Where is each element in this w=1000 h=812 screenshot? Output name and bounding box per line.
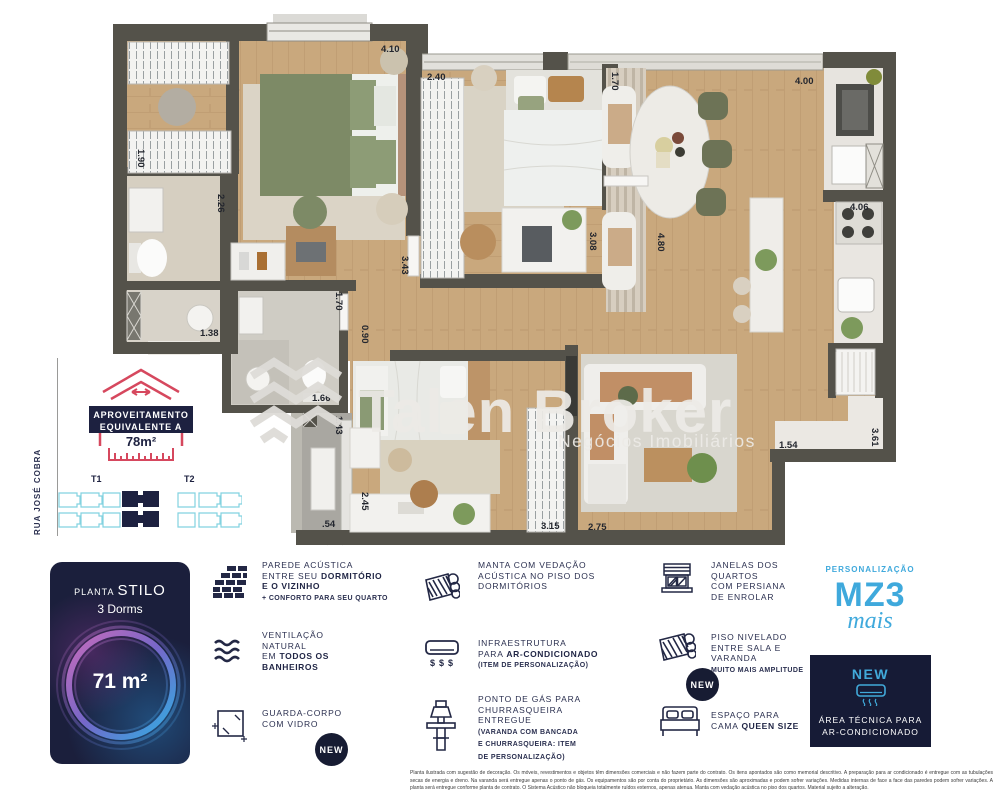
svg-text:3.43: 3.43: [399, 256, 410, 275]
svg-text:4.06: 4.06: [850, 202, 869, 213]
svg-text:3.15: 3.15: [541, 521, 560, 532]
svg-text:3.61: 3.61: [869, 428, 880, 447]
svg-text:1.90: 1.90: [135, 149, 146, 168]
svg-text:2.75: 2.75: [588, 522, 607, 533]
svg-text:4.10: 4.10: [381, 44, 400, 55]
svg-text:Negócios Imobiliários: Negócios Imobiliários: [558, 431, 756, 451]
svg-text:.54: .54: [322, 519, 336, 530]
svg-text:3.08: 3.08: [587, 232, 598, 251]
svg-text:0.90: 0.90: [359, 325, 370, 344]
svg-text:2.26: 2.26: [215, 194, 226, 213]
svg-text:$: $: [430, 658, 435, 668]
svg-text:$: $: [439, 658, 444, 668]
svg-text:4.80: 4.80: [655, 233, 666, 252]
svg-text:2.45: 2.45: [359, 492, 370, 511]
svg-text:1.54: 1.54: [779, 440, 798, 451]
svg-text:$: $: [448, 658, 453, 668]
svg-text:1.70: 1.70: [333, 292, 344, 311]
svg-text:2.40: 2.40: [427, 72, 446, 83]
svg-text:1.38: 1.38: [200, 328, 219, 339]
svg-text:4.00: 4.00: [795, 76, 814, 87]
svg-text:1.70: 1.70: [609, 72, 620, 91]
